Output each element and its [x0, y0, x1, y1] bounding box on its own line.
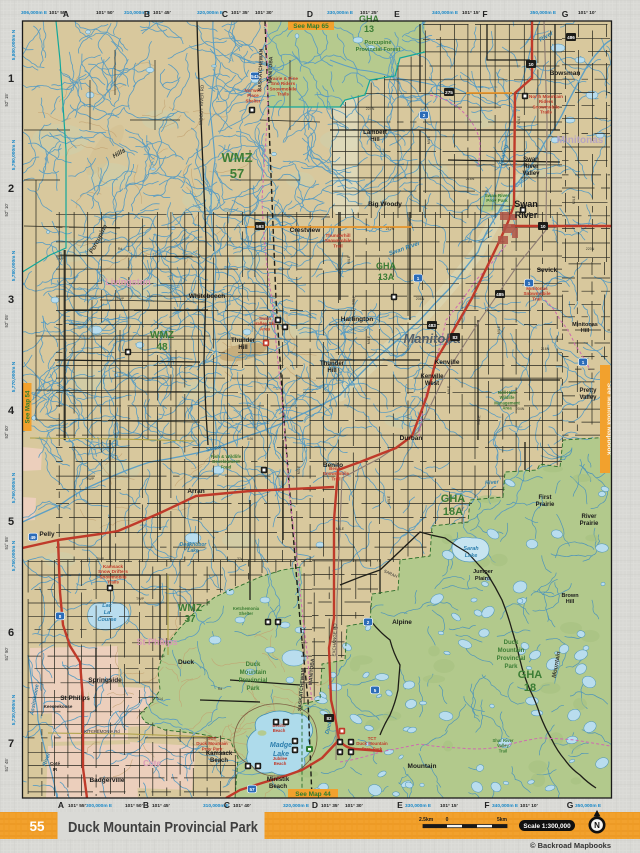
svg-text:TWP: TWP — [86, 477, 95, 481]
svg-text:MILE: MILE — [572, 195, 576, 204]
svg-text:Rd: Rd — [218, 687, 223, 691]
svg-text:101° 15': 101° 15' — [440, 803, 458, 809]
svg-text:Kamsack: Kamsack — [206, 751, 233, 757]
svg-text:F: F — [484, 800, 489, 810]
svg-text:Sevick: Sevick — [537, 267, 558, 274]
svg-text:55: 55 — [29, 819, 45, 834]
svg-text:KITCHEMONIA Rd: KITCHEMONIA Rd — [84, 729, 120, 734]
svg-text:52° 05': 52° 05' — [4, 314, 9, 327]
svg-text:La: La — [104, 610, 110, 616]
svg-text:340,000m E: 340,000m E — [432, 10, 459, 16]
svg-text:D: D — [312, 800, 318, 810]
svg-text:1: 1 — [8, 73, 14, 85]
svg-text:Rd: Rd — [118, 247, 123, 251]
svg-text:TWP: TWP — [116, 297, 125, 301]
svg-text:GHA: GHA — [441, 493, 466, 505]
svg-text:5km: 5km — [497, 817, 508, 823]
svg-text:Trails: Trails — [277, 92, 289, 97]
svg-text:Shelter: Shelter — [246, 98, 261, 103]
svg-text:Hill: Hill — [581, 328, 590, 334]
svg-text:57: 57 — [249, 787, 255, 792]
svg-text:MILE: MILE — [367, 335, 371, 344]
svg-text:37: 37 — [184, 614, 196, 625]
svg-text:MILE: MILE — [351, 295, 356, 305]
svg-text:Beach: Beach — [273, 728, 286, 733]
svg-text:101° 50': 101° 50' — [125, 803, 143, 809]
svg-text:216N: 216N — [541, 347, 550, 351]
svg-text:208N: 208N — [416, 297, 425, 301]
svg-text:101° 15': 101° 15' — [462, 10, 480, 16]
svg-text:Harlington: Harlington — [341, 316, 374, 323]
svg-text:Arran: Arran — [187, 488, 204, 495]
svg-text:101° 45': 101° 45' — [153, 10, 171, 16]
svg-text:Pelly: Pelly — [39, 531, 55, 538]
svg-text:Swan: Swan — [523, 157, 539, 163]
svg-text:Kenville: Kenville — [420, 374, 444, 380]
svg-text:MILE: MILE — [387, 495, 391, 504]
svg-text:G: G — [562, 9, 569, 19]
svg-text:Pretty: Pretty — [579, 388, 597, 394]
svg-text:314: 314 — [157, 697, 163, 701]
svg-text:Durban: Durban — [400, 435, 423, 442]
svg-text:1: 1 — [528, 281, 531, 286]
svg-text:101° 30': 101° 30' — [255, 10, 273, 16]
svg-text:Sarah: Sarah — [463, 546, 479, 552]
svg-text:Beach: Beach — [274, 761, 287, 766]
svg-text:Porcupine: Porcupine — [365, 40, 392, 46]
svg-text:Thunder: Thunder — [320, 361, 345, 367]
svg-text:0: 0 — [446, 817, 449, 823]
svg-text:Madge: Madge — [270, 742, 292, 749]
svg-text:5,770,000m N: 5,770,000m N — [11, 361, 17, 392]
svg-text:Alpine: Alpine — [392, 619, 412, 626]
svg-text:Duck: Duck — [504, 640, 519, 646]
svg-text:B: B — [143, 800, 149, 810]
svg-text:Cote: Cote — [143, 759, 161, 768]
svg-text:WMZ: WMZ — [221, 150, 252, 165]
svg-text:275: 275 — [445, 90, 453, 95]
svg-text:324: 324 — [237, 557, 243, 561]
svg-text:Hill: Hill — [327, 368, 337, 374]
svg-text:Lake: Lake — [187, 548, 199, 554]
svg-text:101° 55': 101° 55' — [68, 803, 86, 809]
svg-text:1: 1 — [417, 276, 420, 281]
svg-text:West: West — [425, 381, 439, 387]
svg-text:5,730,000m N: 5,730,000m N — [11, 694, 17, 725]
svg-text:593: 593 — [256, 224, 264, 229]
svg-text:48: 48 — [156, 342, 168, 353]
svg-text:330,000m E: 330,000m E — [405, 803, 432, 809]
svg-text:Trail: Trail — [333, 243, 342, 248]
svg-text:52° 00': 52° 00' — [4, 425, 9, 438]
svg-text:101° 35': 101° 35' — [231, 10, 249, 16]
svg-text:7: 7 — [8, 738, 14, 750]
svg-text:© Backroad Mapbooks: © Backroad Mapbooks — [530, 841, 611, 850]
svg-text:Trails: Trails — [540, 110, 552, 115]
svg-text:River: River — [485, 479, 500, 486]
svg-text:MILE: MILE — [427, 135, 431, 144]
svg-text:E: E — [394, 9, 400, 19]
svg-text:Prov Park: Prov Park — [362, 746, 383, 751]
svg-text:Whitebeech: Whitebeech — [189, 293, 226, 300]
svg-text:WMZ: WMZ — [178, 603, 202, 614]
svg-text:5,800,000m N: 5,800,000m N — [11, 29, 17, 60]
svg-text:GHA: GHA — [518, 669, 543, 681]
svg-text:4: 4 — [8, 405, 15, 417]
svg-text:Hill: Hill — [566, 599, 575, 605]
svg-text:Ministik: Ministik — [267, 777, 290, 783]
svg-text:3: 3 — [8, 294, 14, 306]
svg-text:18A: 18A — [443, 506, 463, 518]
svg-text:212N: 212N — [386, 227, 395, 231]
svg-text:MANITOBA: MANITOBA — [268, 56, 275, 83]
svg-text:350,000m E: 350,000m E — [530, 10, 557, 16]
svg-text:Prov Park: Prov Park — [486, 198, 508, 203]
svg-text:Scale 1:300,000: Scale 1:300,000 — [523, 823, 571, 830]
svg-text:Prov Park: Prov Park — [202, 746, 223, 751]
svg-text:Duck: Duck — [246, 662, 261, 668]
svg-text:River: River — [523, 164, 539, 170]
svg-text:8: 8 — [59, 614, 62, 619]
svg-text:220N: 220N — [586, 247, 595, 251]
svg-text:548: 548 — [247, 437, 253, 441]
svg-text:MILE: MILE — [336, 527, 345, 531]
svg-text:D: D — [307, 9, 313, 19]
svg-text:Keeseekoose: Keeseekoose — [44, 704, 73, 709]
svg-text:St Philips: St Philips — [60, 695, 90, 702]
svg-text:218N: 218N — [466, 177, 475, 181]
svg-text:52° 15': 52° 15' — [4, 93, 9, 106]
svg-text:485: 485 — [496, 292, 504, 297]
svg-text:5,750,000m N: 5,750,000m N — [11, 540, 17, 571]
svg-text:Crestview: Crestview — [290, 227, 322, 234]
svg-text:13A: 13A — [378, 272, 395, 282]
svg-text:See Map 54: See Map 54 — [26, 390, 32, 423]
svg-text:MILE: MILE — [517, 115, 521, 124]
svg-text:5: 5 — [8, 516, 14, 528]
svg-text:Coté: Coté — [50, 761, 60, 766]
svg-text:Prairie: Prairie — [580, 521, 599, 527]
svg-text:Badgerville: Badgerville — [89, 777, 124, 784]
svg-text:13: 13 — [364, 24, 374, 34]
svg-text:Hill: Hill — [238, 345, 248, 351]
svg-text:Thunder: Thunder — [231, 338, 256, 344]
svg-text:10: 10 — [528, 62, 534, 67]
svg-text:Hill: Hill — [370, 137, 380, 143]
svg-text:Fond: Fond — [221, 464, 232, 469]
svg-text:MILE: MILE — [497, 325, 501, 334]
svg-text:WMZ: WMZ — [150, 330, 174, 341]
svg-text:Lake: Lake — [465, 553, 478, 559]
svg-text:Provincial: Provincial — [497, 656, 526, 662]
svg-text:101° 30': 101° 30' — [345, 803, 363, 809]
svg-text:Kenville: Kenville — [435, 359, 460, 366]
svg-text:Duck Mountain Provincial Park: Duck Mountain Provincial Park — [68, 819, 259, 836]
svg-text:River: River — [515, 210, 538, 220]
svg-text:Rd: Rd — [198, 517, 203, 521]
svg-text:Bowsman: Bowsman — [550, 70, 581, 77]
svg-text:Minitonas: Minitonas — [557, 135, 604, 146]
svg-text:101° 45': 101° 45' — [152, 803, 170, 809]
svg-text:51° 55': 51° 55' — [4, 536, 9, 549]
svg-text:Park: Park — [246, 686, 260, 692]
svg-text:First: First — [538, 495, 551, 501]
svg-text:A: A — [63, 9, 69, 19]
svg-text:18: 18 — [524, 682, 536, 694]
svg-text:2: 2 — [8, 183, 14, 195]
svg-text:Area: Area — [502, 406, 512, 411]
svg-text:Plains: Plains — [475, 576, 491, 582]
svg-text:6: 6 — [8, 627, 14, 639]
svg-text:5,780,000m N: 5,780,000m N — [11, 250, 17, 281]
svg-text:Livingston: Livingston — [105, 277, 151, 287]
svg-text:101° 50': 101° 50' — [96, 10, 114, 16]
svg-text:B: B — [144, 9, 150, 19]
svg-text:IR: IR — [53, 767, 58, 772]
svg-text:483: 483 — [428, 323, 436, 328]
svg-text:Trail: Trail — [499, 748, 508, 753]
svg-text:Trails: Trails — [107, 580, 119, 585]
svg-text:Trail: Trail — [331, 476, 340, 481]
svg-text:Trail: Trail — [532, 296, 541, 301]
svg-text:10: 10 — [540, 224, 546, 229]
svg-text:300,000m E: 300,000m E — [86, 803, 113, 809]
svg-text:340,000m E: 340,000m E — [492, 803, 519, 809]
svg-text:224N: 224N — [366, 107, 375, 111]
svg-text:2: 2 — [367, 620, 370, 625]
svg-text:A: A — [58, 800, 64, 810]
svg-text:TWP: TWP — [136, 597, 145, 601]
svg-text:101° 35': 101° 35' — [321, 803, 339, 809]
svg-text:MILE: MILE — [476, 415, 481, 425]
svg-text:5,790,000m N: 5,790,000m N — [11, 139, 17, 170]
svg-text:Valley: Valley — [522, 171, 540, 177]
svg-text:83: 83 — [326, 716, 332, 721]
svg-text:G: G — [567, 800, 574, 810]
svg-text:MILE: MILE — [447, 385, 451, 394]
svg-text:Jumper: Jumper — [473, 569, 494, 575]
svg-text:330,000m E: 330,000m E — [327, 10, 354, 16]
svg-text:Beach: Beach — [269, 784, 287, 790]
svg-text:1: 1 — [582, 360, 585, 365]
svg-text:Lambert: Lambert — [363, 130, 387, 136]
svg-text:Provincial Forest: Provincial Forest — [356, 47, 401, 53]
svg-text:57: 57 — [230, 166, 244, 181]
svg-text:Area: Area — [260, 326, 271, 331]
svg-text:51° 50': 51° 50' — [4, 647, 9, 660]
svg-text:N: N — [594, 821, 600, 830]
svg-text:Springside: Springside — [88, 677, 122, 684]
svg-text:Mountain: Mountain — [498, 648, 525, 654]
svg-text:E: E — [397, 800, 403, 810]
svg-text:101° 10': 101° 10' — [520, 803, 538, 809]
svg-text:TWP: TWP — [56, 257, 65, 261]
svg-text:Park: Park — [504, 664, 518, 670]
svg-text:Valley: Valley — [579, 395, 597, 401]
svg-text:2.5km: 2.5km — [419, 817, 434, 823]
svg-text:Beach: Beach — [210, 758, 228, 764]
svg-text:See Map 44: See Map 44 — [295, 791, 331, 798]
svg-text:350,000m E: 350,000m E — [575, 803, 602, 809]
svg-text:River: River — [581, 514, 597, 520]
svg-text:320,000m E: 320,000m E — [283, 803, 310, 809]
svg-text:101° 25': 101° 25' — [360, 10, 378, 16]
svg-text:GHA: GHA — [376, 261, 397, 271]
svg-text:Shelter: Shelter — [239, 611, 254, 616]
svg-text:MILE: MILE — [347, 255, 351, 264]
svg-text:Big Woody: Big Woody — [368, 201, 402, 208]
svg-text:5: 5 — [374, 688, 377, 693]
svg-text:Mountain: Mountain — [240, 670, 267, 676]
svg-text:C: C — [224, 800, 230, 810]
svg-text:Prairie: Prairie — [536, 502, 555, 508]
svg-text:306,000m E: 306,000m E — [21, 10, 48, 16]
svg-text:51° 45': 51° 45' — [4, 758, 9, 771]
svg-text:Duck: Duck — [178, 659, 194, 666]
svg-text:Course: Course — [98, 617, 117, 623]
svg-text:TWP: TWP — [96, 557, 105, 561]
svg-text:49: 49 — [30, 535, 36, 540]
svg-text:101° 40': 101° 40' — [233, 803, 251, 809]
svg-text:F: F — [482, 9, 487, 19]
svg-text:MILE: MILE — [297, 465, 301, 474]
svg-text:101° 10': 101° 10' — [578, 10, 596, 16]
svg-text:52° 10': 52° 10' — [4, 203, 9, 216]
svg-text:2: 2 — [423, 113, 426, 118]
svg-text:Mountain: Mountain — [408, 763, 437, 770]
svg-text:See Map 65: See Map 65 — [293, 23, 329, 30]
svg-text:5,760,000m N: 5,760,000m N — [11, 472, 17, 503]
svg-text:320,000m E: 320,000m E — [197, 10, 224, 16]
svg-text:83: 83 — [452, 335, 458, 340]
svg-text:Provincial: Provincial — [239, 678, 268, 684]
svg-text:204N: 204N — [516, 407, 525, 411]
svg-text:Lac: Lac — [102, 603, 111, 609]
svg-text:St Philips: St Philips — [136, 637, 177, 647]
svg-text:C: C — [222, 9, 228, 19]
svg-text:486: 486 — [567, 35, 575, 40]
